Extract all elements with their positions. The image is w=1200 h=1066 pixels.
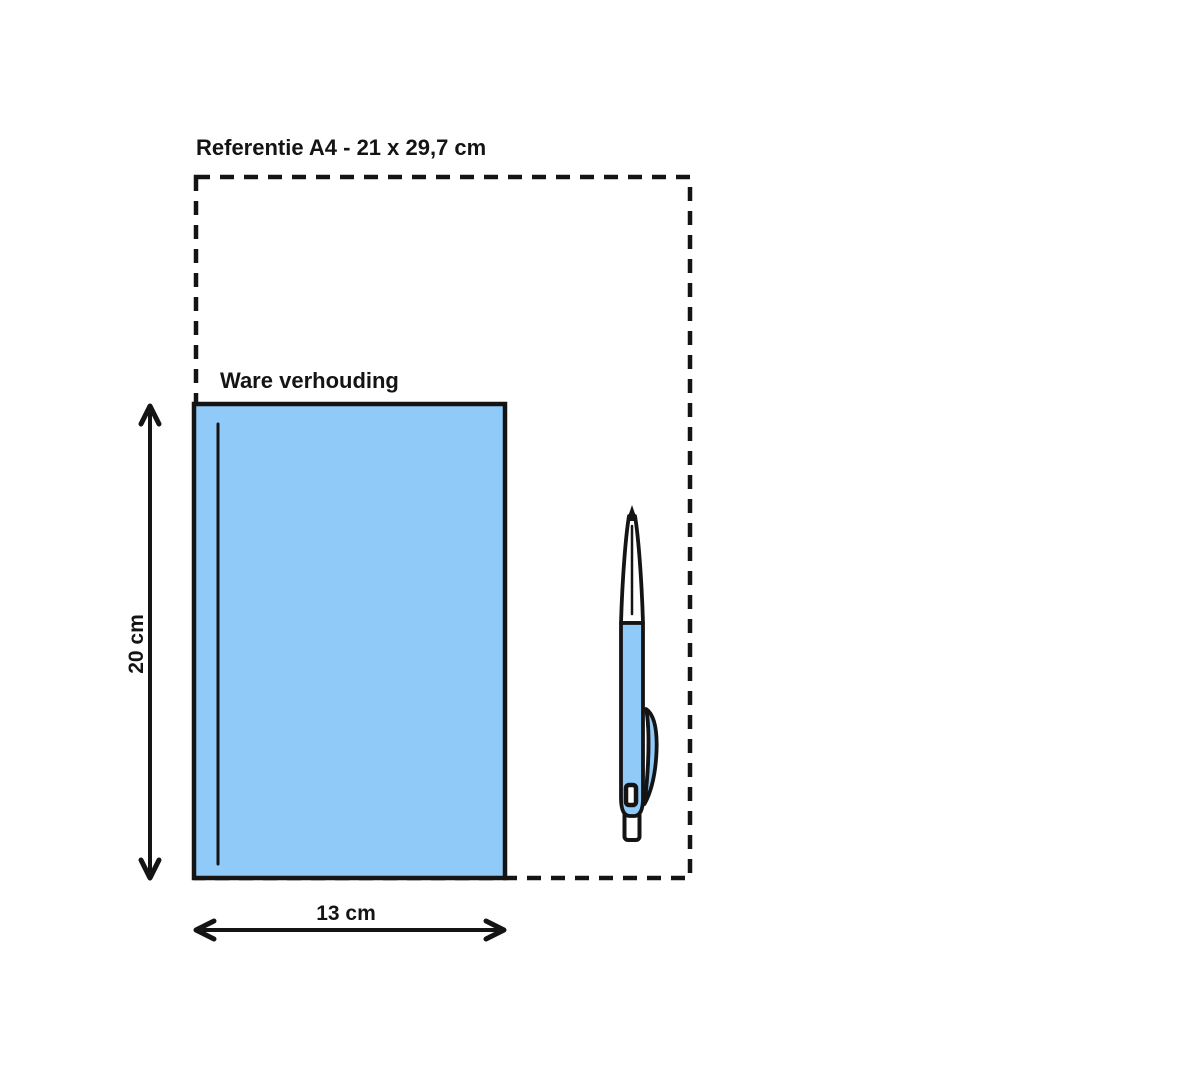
pen-tip (627, 505, 638, 521)
true-scale-label: Ware verhouding (220, 368, 399, 393)
size-comparison-diagram: Referentie A4 - 21 x 29,7 cm Ware verhou… (0, 0, 1200, 1066)
width-label: 13 cm (316, 902, 376, 925)
pen-icon (621, 505, 657, 840)
height-label: 20 cm (125, 614, 148, 674)
pen-clicker-hole (626, 785, 636, 805)
product-rectangle (194, 404, 505, 878)
a4-reference-label: Referentie A4 - 21 x 29,7 cm (196, 135, 486, 160)
